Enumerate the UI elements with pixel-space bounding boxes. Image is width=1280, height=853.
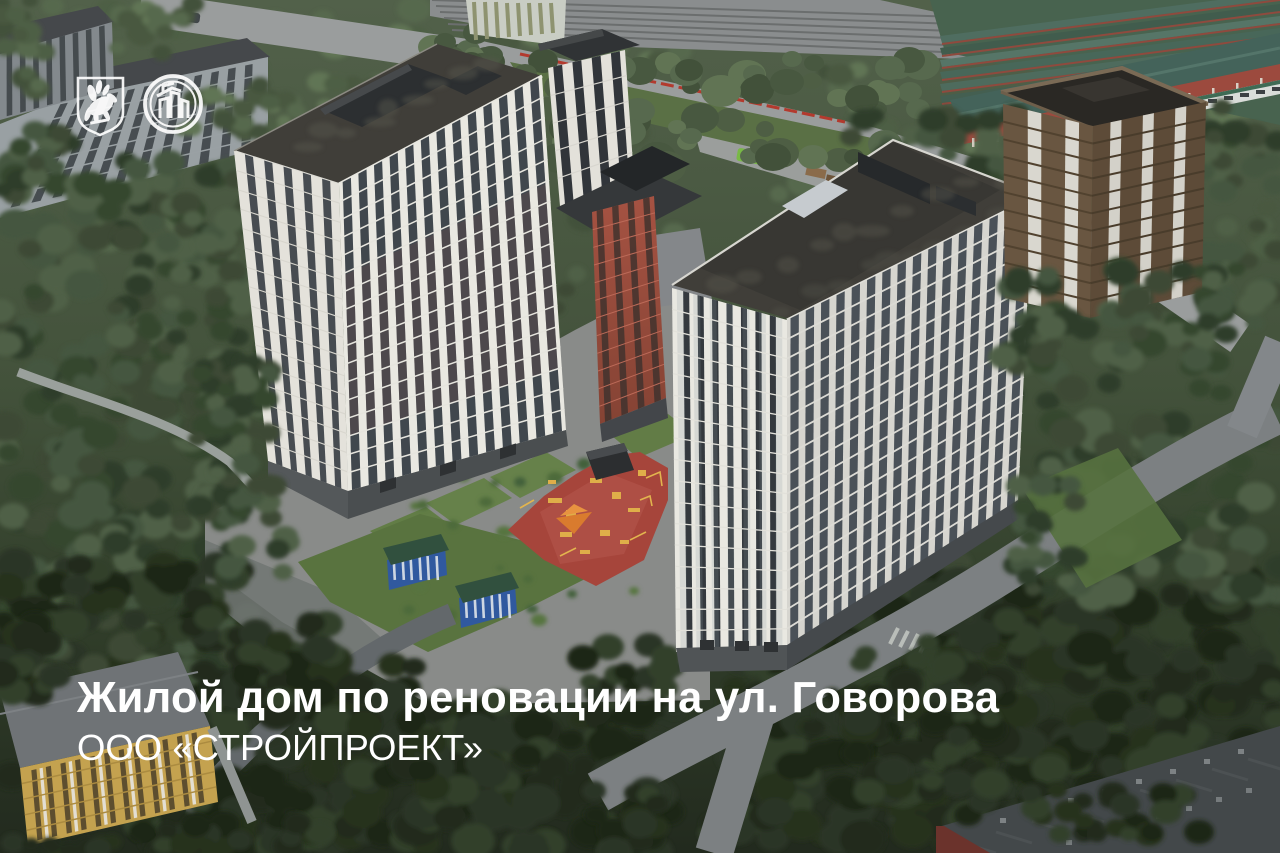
svg-text:Жилой дом по реновации на ул.: Жилой дом по реновации на ул. Говорова xyxy=(76,674,1000,722)
svg-text:ООО «СТРОЙПРОЕКТ»: ООО «СТРОЙПРОЕКТ» xyxy=(77,726,483,768)
